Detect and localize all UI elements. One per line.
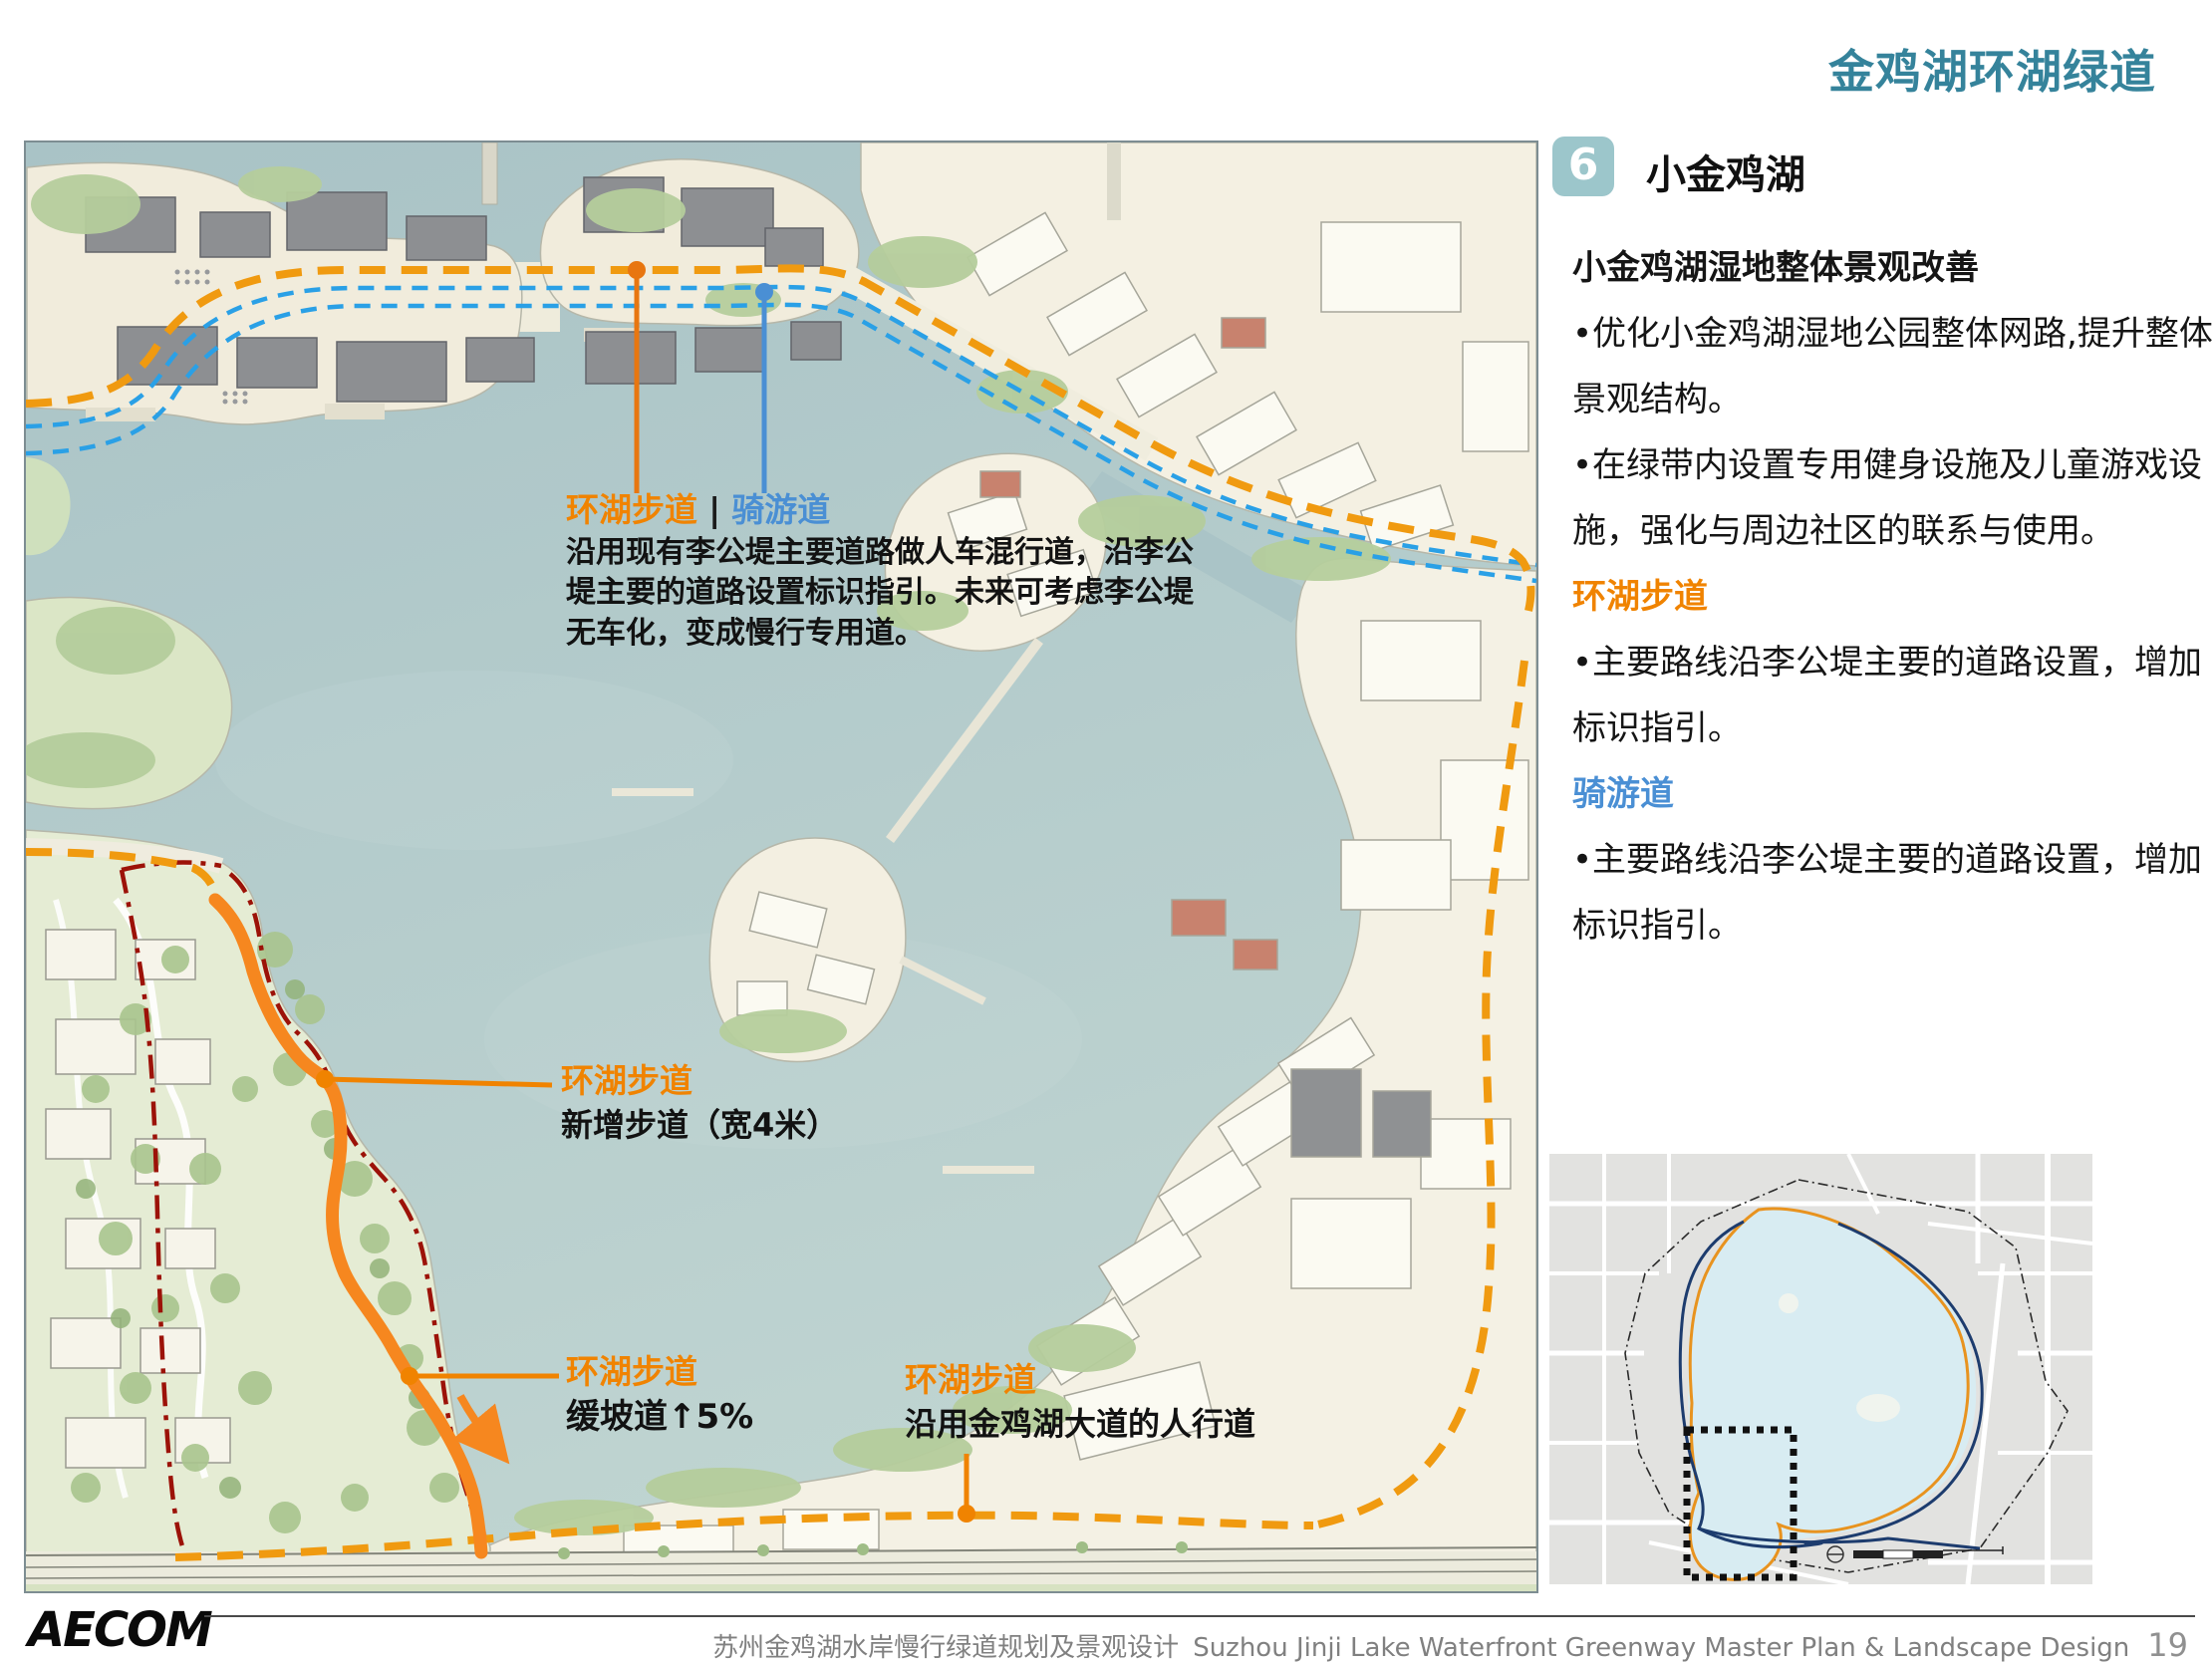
annotation-title: 环湖步道 <box>561 1059 1079 1104</box>
annotation-bikeway-label: 骑游道 <box>731 490 830 529</box>
aecom-logo: AECOM <box>28 1602 211 1658</box>
annotation-divider: | <box>702 490 726 529</box>
key-map-inset <box>1549 1154 2092 1584</box>
page-title: 金鸡湖环湖绿道 <box>1828 36 2156 102</box>
north-pier <box>482 142 497 204</box>
panel-bikeway-label: 骑游道 <box>1572 761 2212 827</box>
description-panel: 小金鸡湖湿地整体景观改善 •优化小金鸡湖湿地公园整体网路,提升整体景观结构。 •… <box>1572 235 2212 959</box>
section-title: 小金鸡湖 <box>1646 142 1805 200</box>
panel-heading: 小金鸡湖湿地整体景观改善 <box>1572 235 2212 301</box>
footer-project-title: 苏州金鸡湖水岸慢行绿道规划及景观设计Suzhou Jinji Lake Wate… <box>712 1626 2188 1664</box>
annotation-causeway-body: 沿用现有李公堤主要道路做人车混行道，沿李公堤主要的道路设置标识指引。未来可考虑李… <box>566 533 1204 655</box>
annotation-new-path: 环湖步道 新增步道（宽4米） <box>561 1059 1079 1147</box>
annotation-walkway-label: 环湖步道 <box>566 490 697 529</box>
page-number: 19 <box>2147 1626 2188 1664</box>
annotation-body: 新增步道（宽4米） <box>561 1104 1079 1147</box>
footer-divider <box>204 1615 2195 1617</box>
panel-bullet-2: •在绿带内设置专用健身设施及儿童游戏设施，强化与周边社区的联系与使用。 <box>1572 432 2212 564</box>
panel-bikeway-bullet: •主要路线沿李公堤主要的道路设置，增加标识指引。 <box>1572 827 2212 959</box>
panel-walkway-bullet: •主要路线沿李公堤主要的道路设置，增加标识指引。 <box>1572 630 2212 761</box>
panel-walkway-label: 环湖步道 <box>1572 564 2212 630</box>
panel-bullet-1: •优化小金鸡湖湿地公园整体网路,提升整体景观结构。 <box>1572 301 2212 432</box>
annotation-causeway: 环湖步道 | 骑游道 沿用现有李公堤主要道路做人车混行道，沿李公堤主要的道路设置… <box>566 488 1204 654</box>
annotation-sidewalk: 环湖步道 沿用金鸡湖大道的人行道 <box>905 1358 1463 1446</box>
annotation-title: 环湖步道 <box>905 1358 1463 1403</box>
main-plan-map: 环湖步道 | 骑游道 沿用现有李公堤主要道路做人车混行道，沿李公堤主要的道路设置… <box>24 140 1538 1593</box>
annotation-body: 沿用金鸡湖大道的人行道 <box>905 1403 1463 1446</box>
section-number-badge: 6 <box>1552 137 1614 196</box>
section-header: 6 小金鸡湖 <box>1552 137 2190 206</box>
key-map-drawing <box>1549 1154 2092 1584</box>
